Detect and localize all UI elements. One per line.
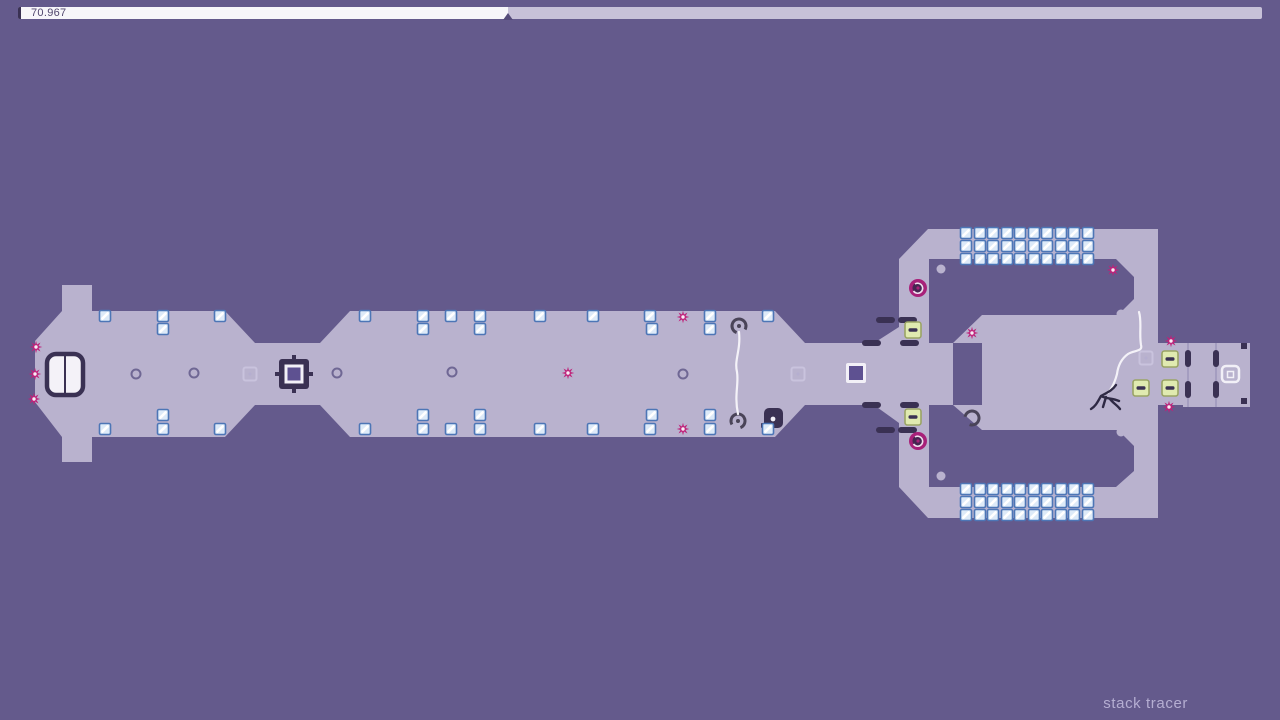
mine bbox=[677, 311, 690, 324]
gold-piece bbox=[1002, 510, 1013, 521]
door-pill bbox=[876, 317, 895, 323]
gold-piece bbox=[100, 311, 111, 322]
gold-piece bbox=[975, 484, 986, 495]
gold-piece bbox=[535, 424, 546, 435]
gold-piece bbox=[705, 410, 716, 421]
green-switch bbox=[905, 409, 921, 425]
gold-piece bbox=[418, 410, 429, 421]
gold-piece bbox=[1015, 228, 1026, 239]
gold-piece bbox=[645, 424, 656, 435]
gold-piece bbox=[158, 424, 169, 435]
gold-piece bbox=[418, 311, 429, 322]
mine bbox=[30, 341, 43, 354]
mine bbox=[28, 393, 41, 406]
green-switch bbox=[1133, 380, 1149, 396]
mine bbox=[966, 327, 979, 340]
gold-piece bbox=[1056, 497, 1067, 508]
gold-piece bbox=[961, 241, 972, 252]
gold-piece bbox=[360, 424, 371, 435]
gold-piece bbox=[1002, 228, 1013, 239]
trap-door-frame bbox=[275, 355, 313, 393]
drone bbox=[909, 279, 927, 297]
green-switch bbox=[905, 322, 921, 338]
gold-piece bbox=[705, 311, 716, 322]
game-screen: 70.967 bbox=[0, 0, 1280, 720]
gold-piece bbox=[988, 497, 999, 508]
gold-piece bbox=[1029, 497, 1040, 508]
gold-piece bbox=[961, 497, 972, 508]
gold-piece bbox=[988, 228, 999, 239]
gold-piece bbox=[1056, 510, 1067, 521]
gold-piece bbox=[961, 228, 972, 239]
gold-piece bbox=[100, 424, 111, 435]
mine bbox=[1163, 401, 1176, 414]
gold-piece bbox=[418, 424, 429, 435]
gold-piece bbox=[1083, 510, 1094, 521]
gold-piece bbox=[1015, 254, 1026, 265]
gold-piece bbox=[975, 510, 986, 521]
gold-piece bbox=[1042, 510, 1053, 521]
gold-piece bbox=[1002, 484, 1013, 495]
gold-piece bbox=[647, 410, 658, 421]
gold-piece bbox=[1029, 254, 1040, 265]
gold-piece bbox=[645, 311, 656, 322]
gold-piece bbox=[1002, 497, 1013, 508]
door-pill bbox=[862, 402, 881, 408]
gold-piece bbox=[763, 424, 774, 435]
level-name: stack tracer bbox=[1103, 695, 1188, 712]
gold-piece bbox=[763, 311, 774, 322]
terrain bbox=[35, 229, 1250, 518]
gold-piece bbox=[1069, 254, 1080, 265]
green-switch bbox=[1162, 351, 1178, 367]
gold-piece bbox=[1056, 254, 1067, 265]
gold-piece bbox=[446, 311, 457, 322]
gold-piece bbox=[988, 484, 999, 495]
gold-piece bbox=[1056, 241, 1067, 252]
door-pill bbox=[900, 340, 919, 346]
gold-piece bbox=[360, 311, 371, 322]
gold-piece bbox=[588, 311, 599, 322]
gold-piece bbox=[1002, 241, 1013, 252]
gold-piece bbox=[975, 241, 986, 252]
exit-door bbox=[47, 354, 83, 395]
mine bbox=[677, 423, 690, 436]
level-viewport[interactable] bbox=[0, 0, 1280, 720]
gold-piece bbox=[1042, 497, 1053, 508]
gold-piece bbox=[1083, 241, 1094, 252]
gold-piece bbox=[1056, 484, 1067, 495]
locked-door-block bbox=[846, 363, 866, 383]
gold-piece bbox=[1042, 254, 1053, 265]
mine bbox=[562, 367, 575, 380]
gold-piece bbox=[1069, 497, 1080, 508]
gold-piece bbox=[1029, 228, 1040, 239]
door-pill bbox=[862, 340, 881, 346]
gold-piece bbox=[1029, 484, 1040, 495]
gold-piece bbox=[158, 410, 169, 421]
gold-piece bbox=[1015, 484, 1026, 495]
gold-piece bbox=[961, 484, 972, 495]
gold-piece bbox=[446, 424, 457, 435]
gold-piece bbox=[705, 424, 716, 435]
gold-piece bbox=[975, 228, 986, 239]
door-pill bbox=[898, 427, 917, 433]
gold-piece bbox=[418, 324, 429, 335]
gold-piece bbox=[1083, 484, 1094, 495]
gold-piece bbox=[158, 311, 169, 322]
gold-piece bbox=[158, 324, 169, 335]
terrain-nub bbox=[937, 472, 946, 481]
gold-piece bbox=[475, 324, 486, 335]
mine bbox=[1107, 264, 1120, 277]
gold-piece bbox=[215, 311, 226, 322]
gold-piece bbox=[1083, 497, 1094, 508]
gold-piece bbox=[1069, 228, 1080, 239]
gold-piece bbox=[1042, 484, 1053, 495]
gold-piece bbox=[1056, 228, 1067, 239]
gold-piece bbox=[475, 410, 486, 421]
gold-piece bbox=[1015, 241, 1026, 252]
green-switch bbox=[1162, 380, 1178, 396]
gold-piece bbox=[1015, 497, 1026, 508]
gold-piece bbox=[975, 254, 986, 265]
gold-piece bbox=[1083, 228, 1094, 239]
gold-piece bbox=[647, 324, 658, 335]
gold-piece bbox=[475, 424, 486, 435]
door-pill bbox=[1185, 381, 1191, 398]
terrain-nub bbox=[1117, 428, 1126, 437]
gold-piece bbox=[705, 324, 716, 335]
gold-piece bbox=[475, 311, 486, 322]
gold-piece bbox=[1029, 241, 1040, 252]
door-pill bbox=[876, 427, 895, 433]
door-pill bbox=[1185, 350, 1191, 367]
gold-piece bbox=[588, 424, 599, 435]
gold-piece bbox=[1042, 241, 1053, 252]
gold-piece bbox=[1002, 254, 1013, 265]
gold-piece bbox=[961, 510, 972, 521]
gold-piece bbox=[1069, 484, 1080, 495]
gold-piece bbox=[1029, 510, 1040, 521]
mine bbox=[29, 368, 42, 381]
drone bbox=[909, 432, 927, 450]
gold-piece bbox=[1069, 510, 1080, 521]
door-pill bbox=[1213, 381, 1219, 398]
gold-piece bbox=[1015, 510, 1026, 521]
terrain-nub bbox=[937, 265, 946, 274]
gold-piece bbox=[535, 311, 546, 322]
terrain-nub bbox=[1117, 310, 1126, 319]
door-pill bbox=[900, 402, 919, 408]
door-pill bbox=[1213, 350, 1219, 367]
gold-piece bbox=[1083, 254, 1094, 265]
gold-piece bbox=[215, 424, 226, 435]
gold-piece bbox=[988, 510, 999, 521]
gold-piece bbox=[1042, 228, 1053, 239]
gold-piece bbox=[988, 241, 999, 252]
gold-piece bbox=[975, 497, 986, 508]
gold-piece bbox=[1069, 241, 1080, 252]
mine bbox=[1165, 335, 1178, 348]
gold-piece bbox=[988, 254, 999, 265]
gold-piece bbox=[961, 254, 972, 265]
